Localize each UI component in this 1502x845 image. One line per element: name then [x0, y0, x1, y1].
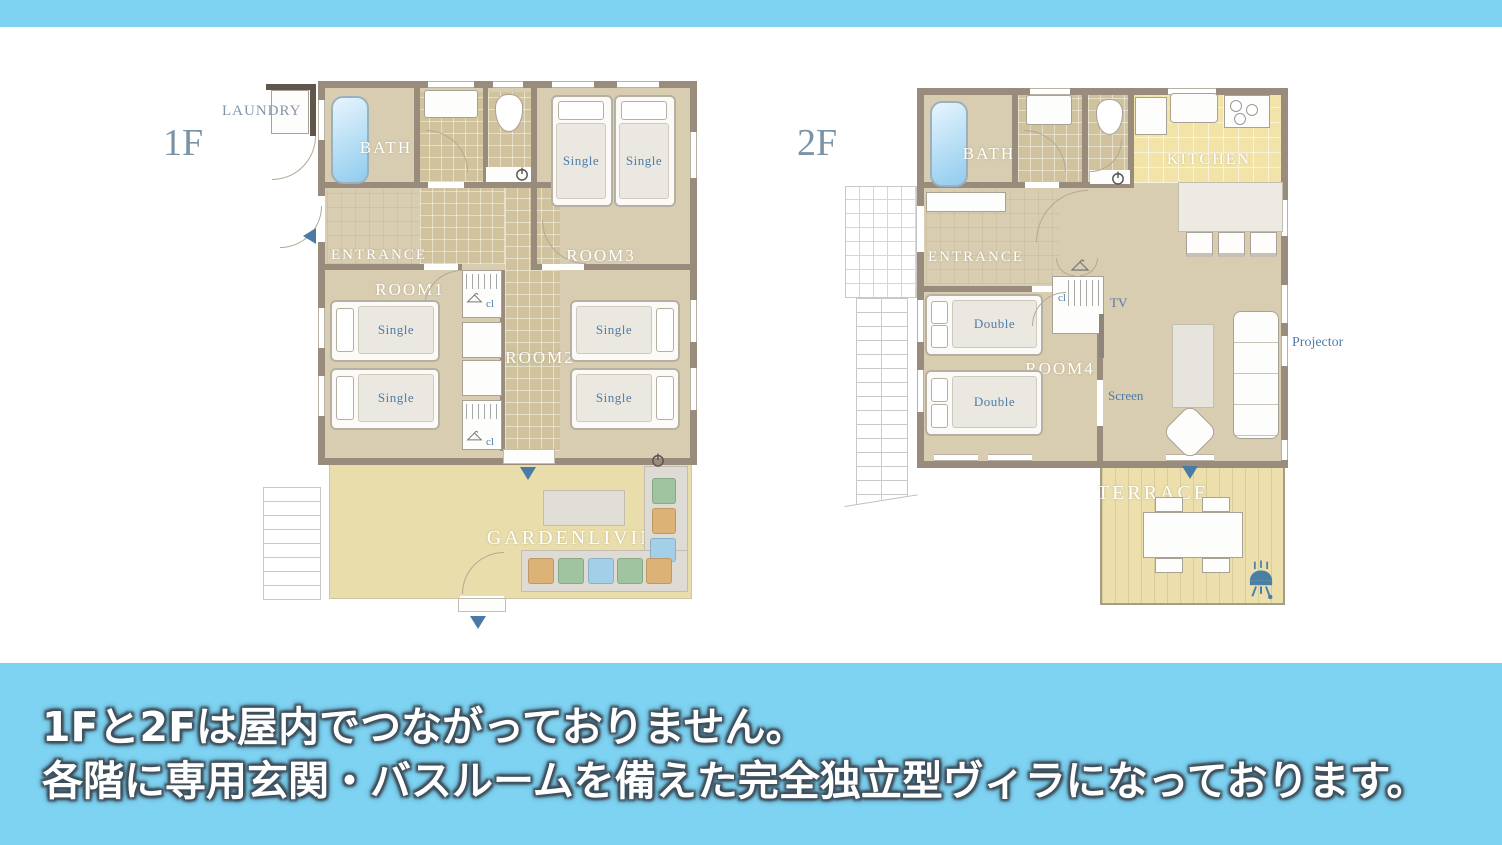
closet-shelf: [462, 322, 502, 358]
bed-size-label: Single: [378, 390, 414, 406]
window: [690, 368, 697, 410]
tv-label: TV: [1110, 295, 1127, 311]
terrace-chair: [1202, 558, 1230, 573]
floor1-door-gap-washroom: [428, 182, 464, 188]
stool: [1186, 232, 1213, 257]
burner: [1234, 113, 1246, 125]
closet-label: cl: [486, 436, 494, 448]
garden-step: [503, 449, 555, 464]
floor1-outdoor-stairs: [263, 487, 321, 600]
closet-rod: [466, 404, 497, 419]
terrace-label: TERRACE: [1097, 482, 1209, 505]
window: [318, 100, 325, 140]
terrace-table: [1143, 512, 1243, 558]
pillow: [621, 101, 667, 120]
floor1-entry-arrow: [303, 228, 316, 244]
projector-label: Projector: [1292, 335, 1343, 351]
burner: [1230, 100, 1242, 112]
window: [493, 81, 523, 88]
pillow: [656, 376, 674, 420]
window: [318, 308, 325, 348]
floor2-landing: [845, 186, 917, 298]
window: [318, 376, 325, 416]
floor2-entry-door-gap: [917, 206, 924, 252]
laundry-wall: [310, 84, 316, 136]
shoe-cabinet: [926, 192, 1006, 212]
bed-single: Single: [330, 300, 440, 362]
kitchen-counter: [1178, 182, 1283, 232]
floor2-outdoor-stairs: [856, 298, 908, 508]
bed-size-label: Double: [974, 394, 1015, 410]
bed-size-label: Single: [596, 322, 632, 338]
bed-single: Single: [330, 368, 440, 430]
hanger-icon: [466, 292, 483, 304]
terrace-chair: [1202, 497, 1230, 512]
cushion-blue: [588, 558, 614, 584]
cushion-green: [558, 558, 584, 584]
floor2-door-gap-washroom: [1025, 182, 1059, 188]
window: [428, 81, 474, 88]
window: [617, 81, 659, 88]
power-icon: [650, 452, 666, 468]
closet-rod: [466, 274, 497, 289]
caption-line1: 1Fと2Fは屋内でつながっておりません。: [42, 700, 1427, 754]
room2-label: ROOM2: [505, 348, 575, 368]
bbq-grill-icon: [1246, 558, 1276, 600]
window: [552, 81, 594, 88]
bed-size-label: Single: [596, 390, 632, 406]
window: [690, 300, 697, 342]
cushion-orange: [528, 558, 554, 584]
power-icon: [514, 166, 530, 182]
pillow: [336, 308, 354, 352]
window: [917, 370, 924, 412]
bed-double: Double: [925, 370, 1043, 436]
window: [917, 300, 924, 342]
bed-single: Single: [570, 368, 680, 430]
entrance-label: ENTRANCE: [331, 247, 427, 264]
floor2-screen-opening: [1097, 380, 1103, 426]
window: [1281, 285, 1288, 323]
floorplan-infographic: 1Fと2Fは屋内でつながっておりません。 各階に専用玄関・バスルームを備えた完全…: [0, 0, 1502, 845]
cushion-orange: [652, 508, 676, 534]
pillow: [931, 325, 948, 348]
closet-label: cl: [486, 298, 494, 310]
cushion-green: [652, 478, 676, 504]
caption-line2: 各階に専用玄関・バスルームを備えた完全独立型ヴィラになっております。: [42, 754, 1427, 808]
entrance-label: ENTRANCE: [928, 249, 1024, 266]
top-band: [0, 0, 1502, 27]
floor1-door-gap-room1: [424, 264, 458, 270]
tv-panel: [1099, 314, 1104, 358]
living-table: [543, 490, 625, 526]
floor2-title: 2F: [797, 121, 837, 165]
bed-double: Double: [925, 294, 1043, 356]
stool: [1250, 232, 1277, 257]
floor1-title: 1F: [163, 121, 203, 165]
duvet: Single: [358, 374, 434, 422]
duvet: Double: [952, 376, 1037, 428]
bed-size-label: Double: [974, 316, 1015, 332]
bed-size-label: Single: [626, 153, 662, 169]
window: [988, 454, 1032, 461]
floor1-wall-room3-left: [531, 88, 537, 270]
cushion-orange: [646, 558, 672, 584]
bath-label: BATH: [360, 138, 412, 158]
bed-single: Single: [614, 95, 676, 207]
terrace-chair: [1155, 497, 1183, 512]
duvet: Single: [556, 123, 606, 199]
terrace-entry-arrow: [1182, 466, 1198, 479]
laundry-label: LAUNDRY: [222, 103, 302, 120]
floor2-wall-bath: [1012, 95, 1018, 185]
window: [1030, 88, 1070, 95]
closet-rod: [1068, 280, 1100, 306]
floor2-wall-washroom: [1082, 95, 1088, 185]
window: [1281, 336, 1288, 366]
caption: 1Fと2Fは屋内でつながっておりません。 各階に専用玄関・バスルームを備えた完全…: [42, 700, 1427, 808]
duvet: Double: [952, 300, 1037, 348]
pillow: [336, 376, 354, 420]
bed-size-label: Single: [378, 322, 414, 338]
kitchen-sink: [1170, 93, 1218, 123]
pillow: [931, 301, 948, 324]
pillow: [558, 101, 604, 120]
stairs-rail: [881, 298, 882, 508]
closet-shelf: [462, 360, 502, 396]
garden-outer-step: [458, 598, 506, 612]
coffee-table: [1172, 324, 1214, 408]
garden-exit-arrow: [470, 616, 486, 629]
window: [690, 132, 697, 178]
bed-size-label: Single: [563, 153, 599, 169]
duvet: Single: [619, 123, 669, 199]
cushion-green: [617, 558, 643, 584]
bed-single: Single: [551, 95, 613, 207]
hanger-icon: [466, 430, 483, 442]
duvet: Single: [576, 306, 652, 354]
stool: [1218, 232, 1245, 257]
burner: [1246, 104, 1258, 116]
duvet: Single: [358, 306, 434, 354]
pillow: [931, 404, 948, 428]
window: [1281, 440, 1288, 460]
pillow: [656, 308, 674, 352]
screen-label: Screen: [1108, 388, 1143, 404]
bath-label: BATH: [963, 144, 1015, 164]
terrace-chair: [1155, 558, 1183, 573]
window: [934, 454, 978, 461]
duvet: Single: [576, 374, 652, 422]
kitchen-cabinet: [1135, 97, 1167, 135]
laundry-door-arc: [272, 136, 316, 180]
garden-entry-arrow: [520, 467, 536, 480]
washbasin: [424, 90, 478, 118]
bed-single: Single: [570, 300, 680, 362]
kitchen-label: KITCHEN: [1167, 151, 1251, 169]
washbasin: [1026, 95, 1072, 125]
power-icon: [1110, 170, 1126, 186]
sofa: [1233, 311, 1279, 439]
pillow: [931, 378, 948, 402]
floor1-wall-bath: [414, 88, 420, 185]
